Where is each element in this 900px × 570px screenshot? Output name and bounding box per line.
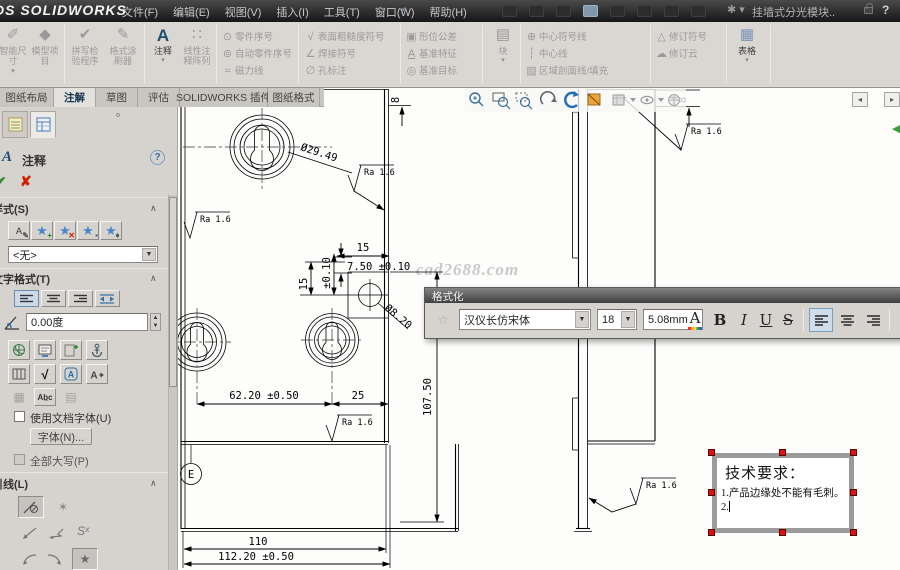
text-direction-button[interactable]: A <box>86 364 108 384</box>
keyhole-feature-top <box>183 108 332 192</box>
revision-cloud-icon: ☁ <box>654 47 669 60</box>
auto-balloon-icon: ⊚ <box>220 47 235 60</box>
magnetic-line-icon: ≈ <box>220 65 235 77</box>
svg-text:Ra 1.6: Ra 1.6 <box>342 418 373 428</box>
tab-solidworks-addins[interactable]: SOLIDWORKS 插件 <box>180 88 268 107</box>
align-right-button[interactable] <box>861 308 885 332</box>
svg-text:Ra 1.6: Ra 1.6 <box>200 215 231 225</box>
ribbon-datum-target[interactable]: ◎基准目标 <box>404 63 457 77</box>
leader-curve-left-icon[interactable] <box>18 550 40 568</box>
dimension-text: 15 <box>298 278 310 291</box>
ribbon-tables[interactable]: ▦表格▾ <box>730 26 764 65</box>
keyhole-feature-right <box>301 308 364 406</box>
note-line[interactable]: 2. <box>721 501 849 513</box>
svg-text:A: A <box>90 370 97 381</box>
bold-button[interactable]: B <box>709 308 731 332</box>
linear-note-pattern-icon: ∷ <box>180 26 214 46</box>
chevron-down-icon: ▾ <box>486 57 520 65</box>
resize-handle[interactable] <box>850 489 857 496</box>
tab-sketch[interactable]: 草图 <box>96 88 138 107</box>
format-toolbar[interactable]: 格式化 ☆ 汉仪长仿宋体 ▼ 18 ▼ 5.08mm A B I U S <box>424 287 900 339</box>
dimension-text: ±0.10 <box>321 257 333 289</box>
ribbon-note[interactable]: A 注释▾ <box>146 26 180 65</box>
color-strip <box>688 327 702 330</box>
tables-icon: ▦ <box>730 26 764 46</box>
insert-symbol-button[interactable]: √ <box>34 364 56 384</box>
angle-input[interactable]: 0.00度 <box>26 313 148 331</box>
panel-flyout-arrow-icon[interactable]: ◀ <box>892 122 900 135</box>
hole-callout-icon: ∅ <box>303 64 318 77</box>
dimension-text: Ø29.49 <box>299 141 339 164</box>
tab-sheet-format[interactable]: 图纸格式 <box>268 88 320 107</box>
dimension-text: Ø8.20 <box>382 302 414 332</box>
frame-icon <box>12 368 26 380</box>
resize-handle[interactable] <box>708 449 715 456</box>
menu-file[interactable]: 文件(F) <box>122 4 158 20</box>
print-icon[interactable] <box>583 5 598 17</box>
undo-icon[interactable] <box>610 5 625 17</box>
svg-text:Ra 1.6: Ra 1.6 <box>646 481 677 491</box>
all-caps-label: 全部大写(P) <box>30 453 89 469</box>
resize-handle[interactable] <box>779 449 786 456</box>
collapse-chevron-icon[interactable]: ∧ <box>150 203 157 214</box>
chevron-down-icon: ▾ <box>146 57 180 65</box>
resize-handle[interactable] <box>850 449 857 456</box>
document-title: 挂墙式分光模块.. <box>752 4 835 20</box>
property-grid-icon <box>36 117 51 132</box>
surface-finish-symbol: Ra 1.6 <box>589 478 677 512</box>
note-icon: A <box>146 26 180 46</box>
add-symbol-button[interactable] <box>60 340 82 360</box>
link-to-property-button[interactable] <box>34 340 56 360</box>
ribbon-surface-finish[interactable]: √表面粗糙度符号 <box>303 29 385 43</box>
angle-spinner[interactable]: ▲▼ <box>150 313 161 331</box>
leader-curve-right-icon[interactable] <box>44 550 66 568</box>
section-view-icon[interactable] <box>588 94 600 105</box>
chevron-down-icon <box>630 98 636 102</box>
feature-tree-icon <box>8 117 23 132</box>
dimension-text: 110 <box>249 536 268 548</box>
leader-style-button[interactable]: ★ <box>72 548 98 570</box>
block-icon: ▤ <box>486 26 520 46</box>
align-center-button[interactable] <box>835 308 859 332</box>
ribbon-geometric-tolerance[interactable]: ▣形位公差 <box>404 29 457 43</box>
display-style-icon[interactable] <box>613 95 624 105</box>
font-name-select[interactable]: 汉仪长仿宋体 ▼ <box>459 309 591 330</box>
underline-button[interactable]: U <box>755 308 777 332</box>
redo-icon[interactable] <box>637 5 652 17</box>
rotate-view-icon[interactable] <box>541 92 557 104</box>
ribbon-balloon[interactable]: ⊙零件序号 <box>220 29 273 43</box>
pane-close-button[interactable]: ▸ <box>884 92 900 107</box>
front-view <box>163 89 459 532</box>
small-hole-feature <box>300 272 388 318</box>
property-manager-tab[interactable] <box>30 111 56 138</box>
pane-split-button[interactable]: ◂ <box>852 92 868 107</box>
dimension-text: 7.50 ±0.10 <box>347 261 410 273</box>
ribbon-revision-symbol[interactable]: △修订符号 <box>654 29 707 43</box>
text-caret <box>729 501 730 512</box>
chevron-down-icon: ▼ <box>621 311 635 328</box>
pattern-icon: ▦ <box>8 388 30 406</box>
align-left-icon <box>20 294 34 304</box>
align-left-button[interactable] <box>14 290 39 307</box>
menu-tools[interactable]: 工具(T) <box>324 4 360 20</box>
menu-help[interactable]: 帮助(H) <box>430 4 467 20</box>
panel-collapse-dot[interactable] <box>116 113 120 117</box>
angle-icon <box>2 312 22 332</box>
zoom-area-icon[interactable] <box>516 93 532 109</box>
ribbon: ✐智能尺寸▾ ◆模型项目 ✔拼写检验程序 ✎格式涂刷器 A 注释▾ ∷线性注释阵… <box>0 22 900 88</box>
svg-text:Ra 1.6: Ra 1.6 <box>691 127 722 137</box>
ribbon-weld-symbol[interactable]: ∠焊接符号 <box>303 46 356 60</box>
scrollbar-thumb[interactable] <box>169 197 177 387</box>
revision-symbol-icon: △ <box>654 30 669 43</box>
note-a-icon: A <box>2 149 12 166</box>
note-line[interactable]: 技术要求： <box>725 462 849 483</box>
datum-feature-icon: A <box>404 48 419 60</box>
chevron-down-icon <box>658 98 664 102</box>
chevron-down-icon: ▾ <box>730 57 764 65</box>
options-gear-icon[interactable]: ✱ ▾ <box>727 3 745 16</box>
help-icon[interactable]: ? <box>150 150 165 165</box>
view-settings-icon[interactable] <box>669 95 680 106</box>
help-icon[interactable]: ? <box>882 3 889 17</box>
centerline-icon: ┆ <box>524 47 539 60</box>
font-button[interactable]: 字体(N)... <box>30 428 92 445</box>
open-document-icon[interactable] <box>529 5 544 17</box>
watermark: cad2688.com <box>416 260 519 280</box>
ribbon-area-hatch[interactable]: ▨区域剖面线/填充 <box>524 63 608 77</box>
tab-annotation[interactable]: 注解 <box>54 88 96 107</box>
leader-spline-icon[interactable]: Sˣ <box>72 522 94 540</box>
svg-text:Ra 1.6: Ra 1.6 <box>364 168 395 178</box>
menu-edit[interactable]: 编辑(E) <box>173 4 210 20</box>
chevron-down-icon: ▾ <box>0 68 30 76</box>
ribbon-center-mark[interactable]: ⊕中心符号线 <box>524 29 587 43</box>
surface-finish-icon: √ <box>303 31 318 43</box>
tab-evaluate[interactable]: 评估 <box>138 88 180 107</box>
dimension-text: 112.20 ±0.50 <box>218 551 294 563</box>
apply-default-style-button[interactable]: A✎ <box>8 221 30 240</box>
dimension-text: 107.50 <box>422 378 434 416</box>
use-document-font-label: 使用文档字体(U) <box>30 410 111 426</box>
resize-handle[interactable] <box>779 529 786 536</box>
area-hatch-icon: ▨ <box>524 64 539 77</box>
datum-balloon: E <box>181 445 202 485</box>
dimension-text: 62.20 ±0.50 <box>229 390 299 402</box>
menu-insert[interactable]: 插入(I) <box>276 4 308 20</box>
ribbon-hole-callout[interactable]: ∅孔标注 <box>303 63 347 77</box>
ribbon-block[interactable]: ▤块▾ <box>486 26 520 65</box>
previous-view-icon[interactable] <box>565 91 579 107</box>
dimension-text: 25 <box>352 390 365 402</box>
ribbon-auto-balloon[interactable]: ⊚自动零件序号 <box>220 46 292 60</box>
align-center-icon <box>47 294 61 304</box>
table-icon: ▤ <box>60 388 82 406</box>
save-icon[interactable] <box>556 5 571 17</box>
text-format-section-header[interactable]: 文字格式(T) <box>0 271 50 287</box>
geometric-tolerance-icon: ▣ <box>404 30 419 43</box>
leader-straight-icon[interactable] <box>18 524 40 542</box>
weld-symbol-icon: ∠ <box>303 47 318 60</box>
resize-handle[interactable] <box>850 529 857 536</box>
format-toolbar-title[interactable]: 格式化 <box>425 288 900 303</box>
load-style-button[interactable]: ★➧ <box>100 221 122 240</box>
no-leader-icon <box>23 500 39 514</box>
align-right-icon <box>74 294 88 304</box>
property-manager-panel: A 注释 ? ✔ ✘ 样式(S) ∧ A✎ ★+ ★✕ ★▪ ★➧ <无>▼ 文… <box>0 107 178 570</box>
select-icon[interactable] <box>664 5 679 17</box>
ribbon-model-items[interactable]: ◆模型项目 <box>28 26 62 67</box>
rebuild-icon[interactable] <box>691 5 706 17</box>
justify-button[interactable] <box>895 308 900 332</box>
dimension-text: 15 <box>357 242 370 254</box>
save-style-button[interactable]: ★▪ <box>77 221 99 240</box>
collapse-chevron-icon[interactable]: ∧ <box>150 273 157 284</box>
tech-requirements-note[interactable]: 技术要求： 1.产品边缘处不能有毛刺。 2. <box>712 453 854 533</box>
ok-check-icon[interactable]: ✔ <box>0 173 7 191</box>
anchor-icon <box>91 343 103 357</box>
align-left-button[interactable] <box>809 308 833 332</box>
no-leader-button[interactable] <box>18 496 44 518</box>
lock-icon <box>864 7 873 14</box>
auto-leader-icon[interactable]: ✶ <box>50 496 76 518</box>
title-bar: DS SOLIDWORKS 文件(F) 编辑(E) 视图(V) 插入(I) 工具… <box>0 0 900 22</box>
favorite-style-icon[interactable]: ☆ <box>433 308 453 332</box>
surface-finish-symbol: Ra 1.6 <box>184 212 231 238</box>
new-document-icon[interactable] <box>502 5 517 17</box>
ribbon-centerline[interactable]: ┆中心线 <box>524 46 568 60</box>
align-left-icon <box>814 314 829 326</box>
ribbon-format-painter[interactable]: ✎格式涂刷器 <box>106 26 140 67</box>
justify-icon <box>100 294 115 304</box>
use-document-font-checkbox[interactable] <box>14 411 25 422</box>
all-caps-checkbox[interactable] <box>14 454 25 465</box>
leader-section-header[interactable]: 引线(L) <box>0 476 28 492</box>
globe-link-icon <box>12 343 26 357</box>
surface-finish-symbol: Ra 1.6 <box>348 165 395 210</box>
align-center-icon <box>840 314 855 326</box>
align-right-button[interactable] <box>68 290 93 307</box>
ribbon-smart-dimension[interactable]: ✐智能尺寸▾ <box>0 26 30 76</box>
a-arrow-icon: A <box>90 368 105 381</box>
italic-button[interactable]: I <box>733 308 755 332</box>
panel-scrollbar[interactable] <box>168 195 177 570</box>
menu-view[interactable]: 视图(V) <box>225 4 262 20</box>
zoom-fit-icon[interactable] <box>470 93 483 106</box>
justify-button[interactable] <box>95 290 120 307</box>
collapse-chevron-icon[interactable]: ∧ <box>150 478 157 489</box>
model-items-icon: ◆ <box>28 26 62 46</box>
add-style-button[interactable]: ★+ <box>31 221 53 240</box>
tab-sheet-layout[interactable]: 图纸布局 <box>0 88 54 107</box>
boxed-a-icon: A <box>64 367 78 381</box>
hide-show-items-icon[interactable] <box>641 96 653 103</box>
align-right-icon <box>866 314 881 326</box>
ribbon-magnetic-line[interactable]: ≈磁力线 <box>220 63 264 77</box>
insert-hyperlink-button[interactable] <box>8 340 30 360</box>
ribbon-revision-cloud[interactable]: ☁修订云 <box>654 46 698 60</box>
datum-a-button[interactable]: A <box>60 364 82 384</box>
format-painter-icon: ✎ <box>106 26 140 46</box>
chevron-down-icon: ▼ <box>575 311 589 328</box>
balloon-icon: ⊙ <box>220 30 235 43</box>
align-center-button[interactable] <box>41 290 66 307</box>
svg-text:E: E <box>188 469 194 481</box>
datum-target-icon: ◎ <box>404 64 419 77</box>
solidworks-logo: DS SOLIDWORKS <box>0 2 127 18</box>
dimension-text: 8 <box>390 97 402 103</box>
surface-finish-symbol: Ra 1.6 <box>326 415 373 441</box>
center-mark-icon: ⊕ <box>524 30 539 43</box>
font-size-select[interactable]: 18 ▼ <box>597 309 637 330</box>
smart-dimension-icon: ✐ <box>0 26 30 46</box>
menu-bar: 文件(F) 编辑(E) 视图(V) 插入(I) 工具(T) 窗口(W) 帮助(H… <box>122 4 467 20</box>
font-color-button[interactable]: A <box>683 308 707 332</box>
insert-gtol-button[interactable] <box>8 364 30 384</box>
chevron-down-icon: ▼ <box>142 248 156 261</box>
linked-note-icon <box>38 344 52 357</box>
solidworks-window: Ø29.49 Ø8.20 15 7.50 ±0.10 15 ±0.10 62.2… <box>0 0 900 570</box>
resize-handle[interactable] <box>708 489 715 496</box>
spell-checker-icon: ✔ <box>68 26 102 46</box>
lock-note-button[interactable] <box>86 340 108 360</box>
note-line[interactable]: 1.产品边缘处不能有毛刺。 <box>721 485 849 500</box>
zoom-window-icon[interactable] <box>493 93 510 109</box>
ribbon-datum-feature[interactable]: A基准特征 <box>404 46 457 60</box>
command-manager-tabs: 图纸布局 注解 草图 评估 SOLIDWORKS 插件 图纸格式 <box>0 88 324 107</box>
cancel-x-icon[interactable]: ✘ <box>20 173 32 190</box>
heads-up-view-toolbar[interactable] <box>464 88 686 112</box>
symbol-plus-icon <box>64 343 78 357</box>
resize-handle[interactable] <box>708 529 715 536</box>
style-select[interactable]: <无>▼ <box>8 246 158 263</box>
delete-style-button[interactable]: ★✕ <box>54 221 76 240</box>
fit-text-button[interactable]: Ab̲c <box>34 388 56 406</box>
style-section-header[interactable]: 样式(S) <box>0 201 29 217</box>
leader-bent-icon[interactable] <box>44 524 66 542</box>
svg-text:A: A <box>68 370 75 380</box>
strikethrough-button[interactable]: S <box>777 308 799 332</box>
feature-manager-tab[interactable] <box>2 111 28 138</box>
panel-title: 注释 <box>22 152 46 169</box>
ribbon-linear-note-pattern[interactable]: ∷线性注释阵列 <box>180 26 214 67</box>
ribbon-spell-checker[interactable]: ✔拼写检验程序 <box>68 26 102 67</box>
